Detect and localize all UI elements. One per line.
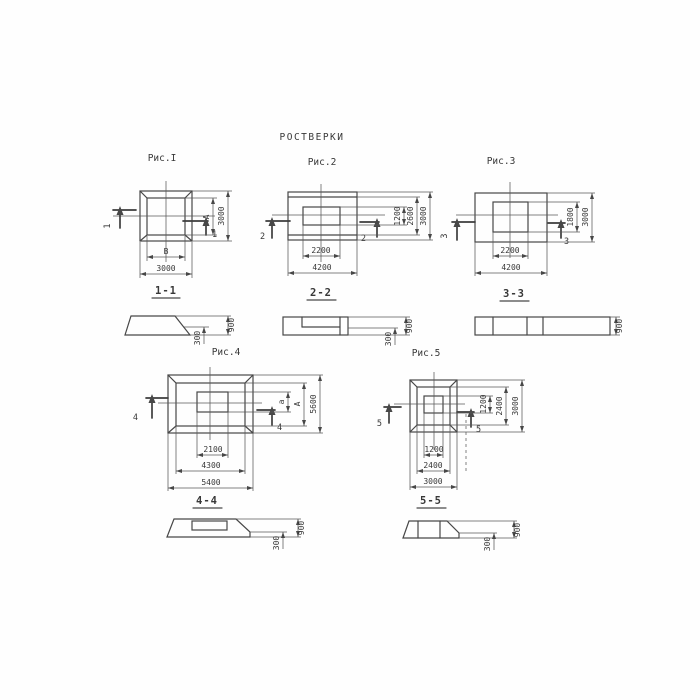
fig4-plan: Рис.4 4 4 а А 5600 2100 (133, 347, 323, 508)
fig5-label: Рис.5 (412, 348, 441, 359)
fig1-plan: Рис.I 1 1 A 3000 В 3000 (103, 153, 232, 298)
fig3-section-title: 3-3 (503, 288, 525, 300)
fig5-section-title: 5-5 (420, 495, 442, 507)
fig4-section-title: 4-4 (196, 495, 218, 507)
dim-label: 1800 (566, 207, 575, 226)
dim-label: 3000 (581, 207, 590, 226)
dim-label: В (164, 247, 169, 256)
fig3-section-view: 900 (475, 317, 624, 335)
dim-label: 300 (384, 332, 393, 347)
dim-label: 2600 (406, 206, 415, 225)
cut-mark-label: 5 (377, 419, 382, 429)
sheet-title: РОСТВЕРКИ (280, 132, 345, 143)
dim-label: 900 (405, 319, 414, 334)
cut-mark-label: 3 (440, 233, 450, 238)
dim-label: 4200 (312, 263, 331, 272)
dim-label: 900 (297, 521, 306, 536)
fig4-label: Рис.4 (212, 347, 241, 358)
grillage-drawing: РОСТВЕРКИ Рис.I 1 1 A 3000 В (0, 0, 700, 700)
fig4-cut-mark-right: 4 (257, 406, 282, 433)
fig5-plan: Рис.5 5 5 1200 2400 3000 1200 (377, 348, 525, 508)
fig1-cut-mark-right: 1 (183, 217, 217, 240)
dim-label: а (277, 399, 286, 404)
fig4-cut-mark-left: 4 (133, 394, 168, 423)
dim-label: 4300 (201, 461, 220, 470)
dim-label: 1200 (393, 206, 402, 225)
cut-mark-label: 4 (133, 413, 138, 423)
dim-label: 3000 (217, 206, 226, 225)
fig5-cut-mark-left: 5 (377, 403, 401, 429)
dim-label: 1200 (424, 445, 443, 454)
dim-label: 2400 (495, 396, 504, 415)
cut-mark-label: 4 (277, 423, 282, 433)
dim-label: 900 (227, 318, 236, 333)
dim-label: 2100 (203, 445, 222, 454)
dim-label: 300 (483, 537, 492, 552)
dim-label: 5400 (201, 478, 220, 487)
fig4-section-view: 900 300 (167, 519, 306, 550)
dim-label: 900 (615, 319, 624, 334)
fig2-label: Рис.2 (308, 157, 337, 168)
cut-mark-label: 2 (260, 232, 265, 242)
fig1-label: Рис.I (148, 153, 177, 164)
fig1-section-view: 900 300 (125, 316, 236, 345)
fig5-cut-mark-right: 5 (457, 408, 481, 435)
dim-label: 2200 (500, 246, 519, 255)
dim-label: 900 (513, 523, 522, 538)
dim-label: 3000 (423, 477, 442, 486)
cut-mark-label: 5 (476, 425, 481, 435)
dim-label: 3000 (419, 206, 428, 225)
drawing-sheet: РОСТВЕРКИ Рис.I 1 1 A 3000 В (0, 0, 700, 700)
fig5-section-view: 900 300 (403, 521, 522, 551)
dim-label: 1200 (479, 394, 488, 413)
fig2-section-title: 2-2 (310, 287, 332, 299)
dim-label: 4200 (501, 263, 520, 272)
fig3-plan: Рис.3 3 3 1800 3000 2200 4200 3-3 (440, 156, 595, 301)
dim-label: 3000 (156, 264, 175, 273)
dim-label: А (293, 401, 302, 406)
fig2-cut-mark-left: 2 (260, 217, 290, 242)
cut-mark-label: 2 (361, 234, 366, 244)
fig2-section-view: 900 300 (283, 317, 414, 346)
fig3-label: Рис.3 (487, 156, 516, 167)
fig3-cut-mark-left: 3 (440, 218, 475, 240)
dim-label: 2200 (311, 246, 330, 255)
dim-label: 300 (272, 536, 281, 551)
fig1-section-title: 1-1 (155, 285, 177, 297)
dim-label: 2400 (423, 461, 442, 470)
dim-label: A (202, 214, 211, 219)
fig1-cut-mark-left: 1 (103, 206, 136, 229)
fig2-plan: Рис.2 2 2 1200 2600 3000 2200 (260, 157, 433, 300)
dim-label: 300 (193, 331, 202, 346)
dim-label: 3000 (511, 396, 520, 415)
dim-label: 5600 (309, 394, 318, 413)
cut-mark-label: 1 (103, 223, 113, 228)
